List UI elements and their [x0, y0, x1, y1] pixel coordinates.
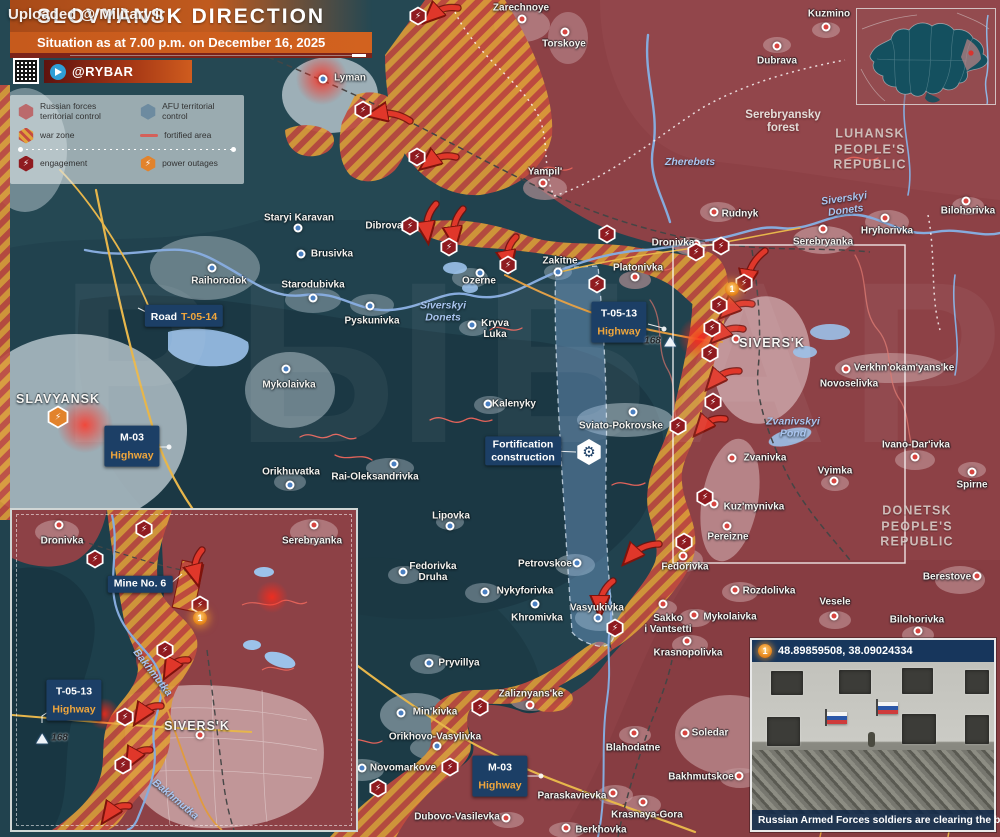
legend-item-label: power outages: [162, 159, 218, 169]
telegram-icon: [50, 64, 66, 80]
legend-item: ⚡power outages: [140, 156, 236, 172]
map-screenshot: РЫБАРЬ ZarechnoyeTorskoyeKuzminoDubravaL…: [0, 0, 1000, 837]
russian-flag-icon: [878, 702, 898, 714]
hx-pow-legend-icon: ⚡: [140, 156, 156, 172]
legend-item: AFU territorial control: [140, 102, 236, 122]
legend-item-label: AFU territorial control: [162, 102, 236, 122]
legend-territory-rows: Russian forces territorial controlAFU te…: [18, 102, 236, 144]
uploader-watermark: Uploaded @ Military.ir: [8, 6, 165, 23]
hx-blue-legend-icon: [140, 104, 156, 120]
legend-incident-row: ⚡engagement⚡power outages: [18, 156, 236, 172]
photo-header: 1 48.89859508, 38.09024334: [752, 640, 994, 662]
legend-item: war zone: [18, 128, 140, 144]
legend-item: ⚡engagement: [18, 156, 140, 172]
telegram-channel-bar: @RYBAR: [44, 60, 192, 83]
hx-eng-legend-icon: ⚡: [18, 156, 34, 172]
channel-name: @RYBAR: [72, 64, 133, 79]
marker-1-badge: 1: [758, 644, 772, 658]
legend-item-label: Russian forces territorial control: [40, 102, 101, 122]
russian-flag-icon: [827, 712, 847, 724]
hx-hatch-legend-icon: [18, 128, 34, 144]
photo-caption: Russian Armed Forces soldiers are cleari…: [752, 810, 994, 830]
siversk-inset-map: DronivkaSerebryankaSIVERS'KBakhmutkaBakh…: [10, 508, 358, 832]
qr-code: [13, 58, 39, 84]
situation-subtitle: Situation as at 7.00 p.m. on December 16…: [37, 35, 325, 50]
legend-item: Russian forces territorial control: [18, 102, 140, 122]
photo-coordinates: 48.89859508, 38.09024334: [778, 645, 913, 657]
line-red-legend-icon: [140, 134, 158, 137]
video-still-inset: 1 48.89859508, 38.09024334 Russian Armed…: [750, 638, 996, 832]
inset-terrain: [12, 510, 356, 830]
map-legend: Russian forces territorial controlAFU te…: [10, 95, 244, 184]
hx-red-legend-icon: [18, 104, 34, 120]
legend-item-label: engagement: [40, 159, 87, 169]
legend-item-label: fortified area: [164, 131, 211, 141]
photo-image: [752, 662, 994, 814]
header-divider: [10, 53, 372, 58]
soldier-figure: [868, 732, 875, 747]
legend-divider: [20, 149, 234, 150]
header-subtitle-band: Situation as at 7.00 p.m. on December 16…: [10, 32, 372, 53]
ukraine-minimap: [856, 8, 996, 105]
legend-item: fortified area: [140, 128, 236, 144]
legend-item-label: war zone: [40, 131, 75, 141]
ukraine-minimap-svg: [857, 9, 995, 104]
